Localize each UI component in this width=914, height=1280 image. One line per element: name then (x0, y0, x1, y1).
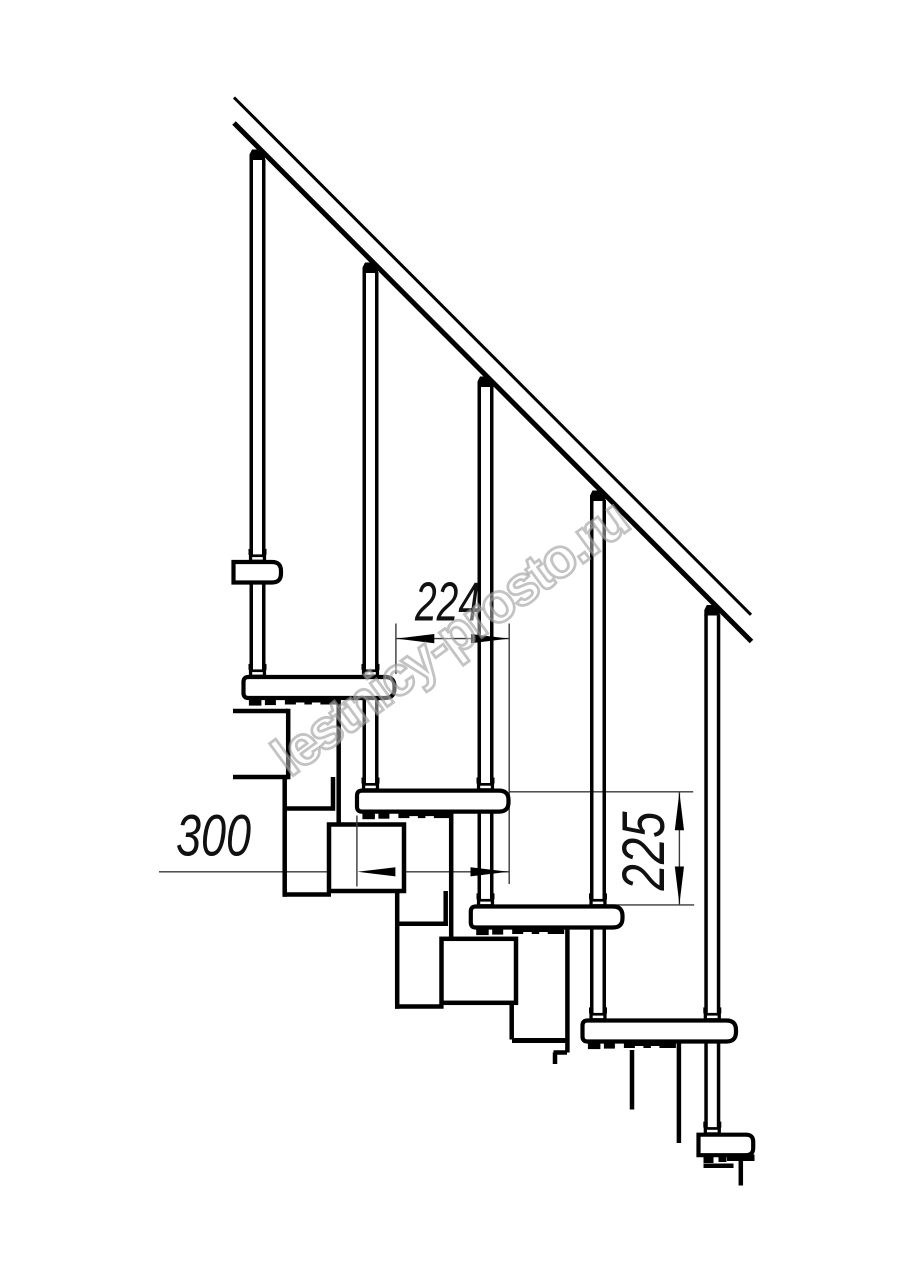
svg-text:300: 300 (176, 803, 251, 868)
svg-text:225: 225 (610, 811, 677, 891)
